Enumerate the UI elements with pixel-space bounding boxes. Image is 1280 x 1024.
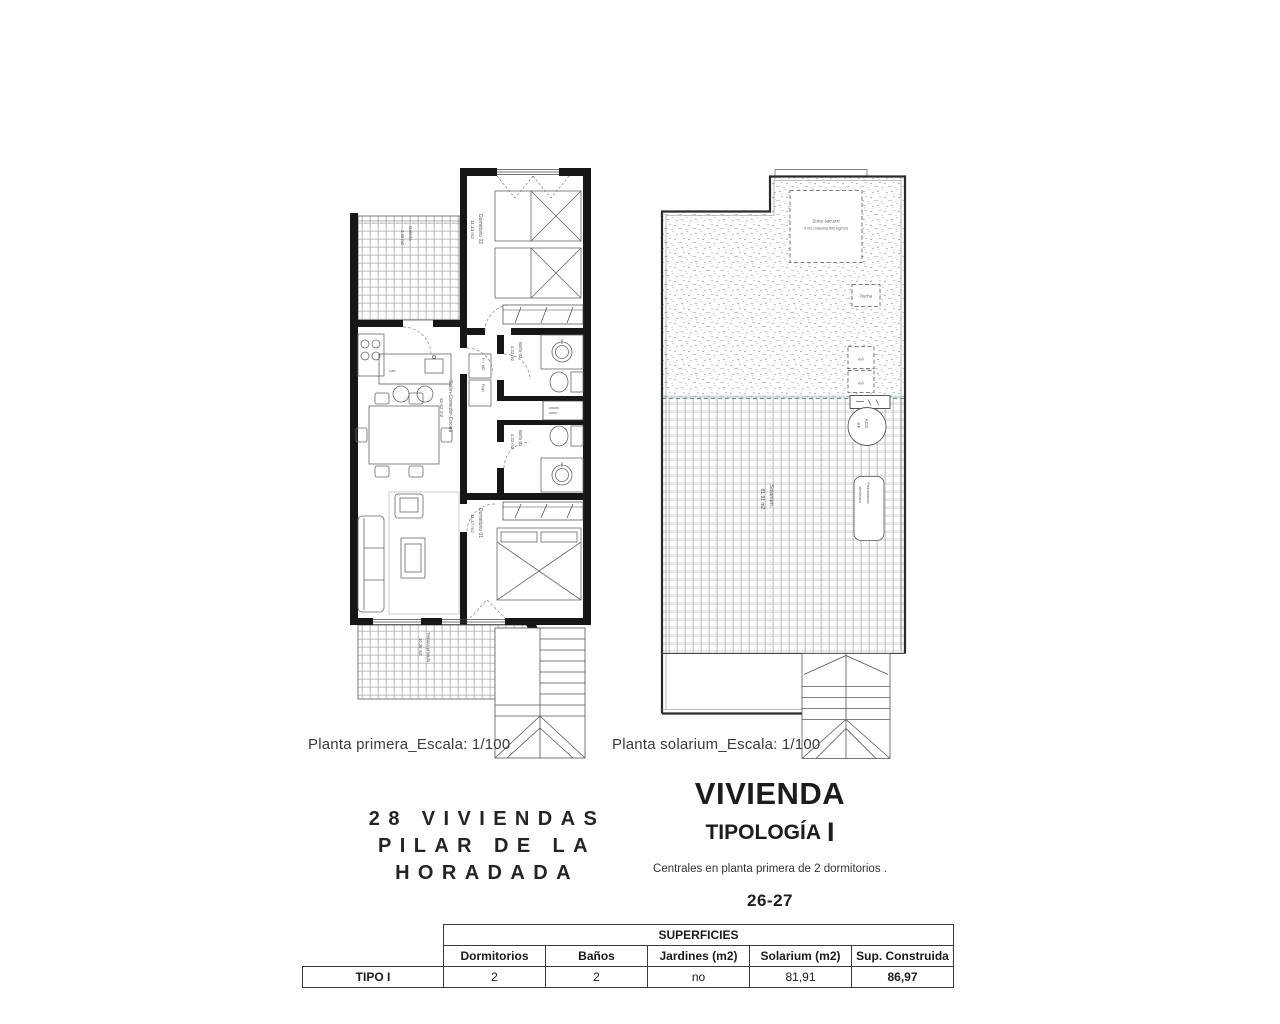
value-banos: 2 [546,967,648,988]
acs-label-2: AF [856,423,861,429]
project-title-line1: 28 VIVIENDAS [346,806,628,833]
jacuzzi-note: 4 m2 (máximo 500 kg/m2) [804,227,849,231]
caption-solarium: Planta solarium_Escala: 1/100 [612,736,820,753]
value-solarium: 81,91 [750,967,852,988]
typology-letter: I [827,817,835,847]
project-title: 28 VIVIENDAS PILAR DE LA HORADADA [346,806,628,887]
jacuzzi-label: Zona Jacuzzi [812,219,839,224]
typology-subtitle-text: TIPOLOGÍA [705,821,821,844]
terraza-label: Terraza privada [426,632,431,663]
shaft [543,401,583,420]
beds-dormitorio-02 [495,176,581,298]
galeria-area: 3,40 m2 [400,230,405,246]
project-title-line2: PILAR DE LA [346,833,628,860]
typology-block: VIVIENDA TIPOLOGÍAI Centrales en planta … [620,776,920,911]
plan-sheet: Lav H + MO Frigo [0,0,1280,1024]
living-furniture [356,393,459,614]
solarium-area: 81,91 m2 [759,489,765,510]
dormitorio-01-label: Dormitorio 01 [477,508,483,538]
salon-area: 32,62 m2 [439,398,444,418]
bed-dormitorio-01 [497,528,581,600]
oven-label: H + MO [481,358,485,371]
col-jardines: Jardines (m2) [648,946,750,967]
aa-2-label: AA [858,381,865,386]
unit-numbers: 26-27 [620,891,920,911]
row-label-tipo: TIPO I [303,967,444,988]
salon-label: Salón-Comedor-Cocina [447,380,453,432]
caption-first-floor: Planta primera_Escala: 1/100 [308,736,510,753]
dormitorio-02-label: Dormitorio 02 [477,214,483,244]
galeria-label: Galería [408,226,413,241]
first-floor-plan: Lav H + MO Frigo [345,158,595,763]
col-banos: Baños [546,946,648,967]
dormitorio-02-area: 11,13 m2 [470,220,475,239]
fridge-label: Frigo [481,384,485,392]
project-title-line3: HORADADA [346,860,628,887]
bano-01-label: Baño 01 [518,430,523,447]
preinstall-label-1: Preinstalación [866,483,870,504]
meter-box [850,396,890,409]
typology-subtitle: TIPOLOGÍAI [620,817,920,848]
col-dormitorios: Dormitorios [444,946,546,967]
shower-label: Ducha [860,294,873,299]
col-solarium: Solarium (m2) [750,946,852,967]
table-title: SUPERFICIES [444,925,954,946]
kitchen [358,334,491,406]
acs-label-1: ACS [864,419,869,428]
value-sup-construida: 86,97 [852,967,954,988]
preinstall-label-2: aerotermia [858,487,862,503]
bano-01-area: 4,22 m2 [510,434,515,450]
solarium-floor-plan: Zona Jacuzzi 4 m2 (máximo 500 kg/m2) Duc… [652,145,910,763]
aa-1-label: AA [858,357,865,362]
terraza-area: 10,28 m2 [418,638,423,656]
solarium-label: Solarium [768,485,774,507]
sink-label: Lav [389,368,395,373]
bano-02-area: 4,22 m2 [510,346,515,362]
surfaces-table: SUPERFICIES Dormitorios Baños Jardines (… [302,924,954,988]
typology-title: VIVIENDA [620,776,920,812]
value-jardines: no [648,967,750,988]
col-sup-construida: Sup. Construida [852,946,954,967]
typology-description: Centrales en planta primera de 2 dormito… [620,863,920,875]
value-dormitorios: 2 [444,967,546,988]
bano-02-label: Baño 02 [518,342,523,359]
dormitorio-01-area: 11,17 m2 [470,514,475,533]
